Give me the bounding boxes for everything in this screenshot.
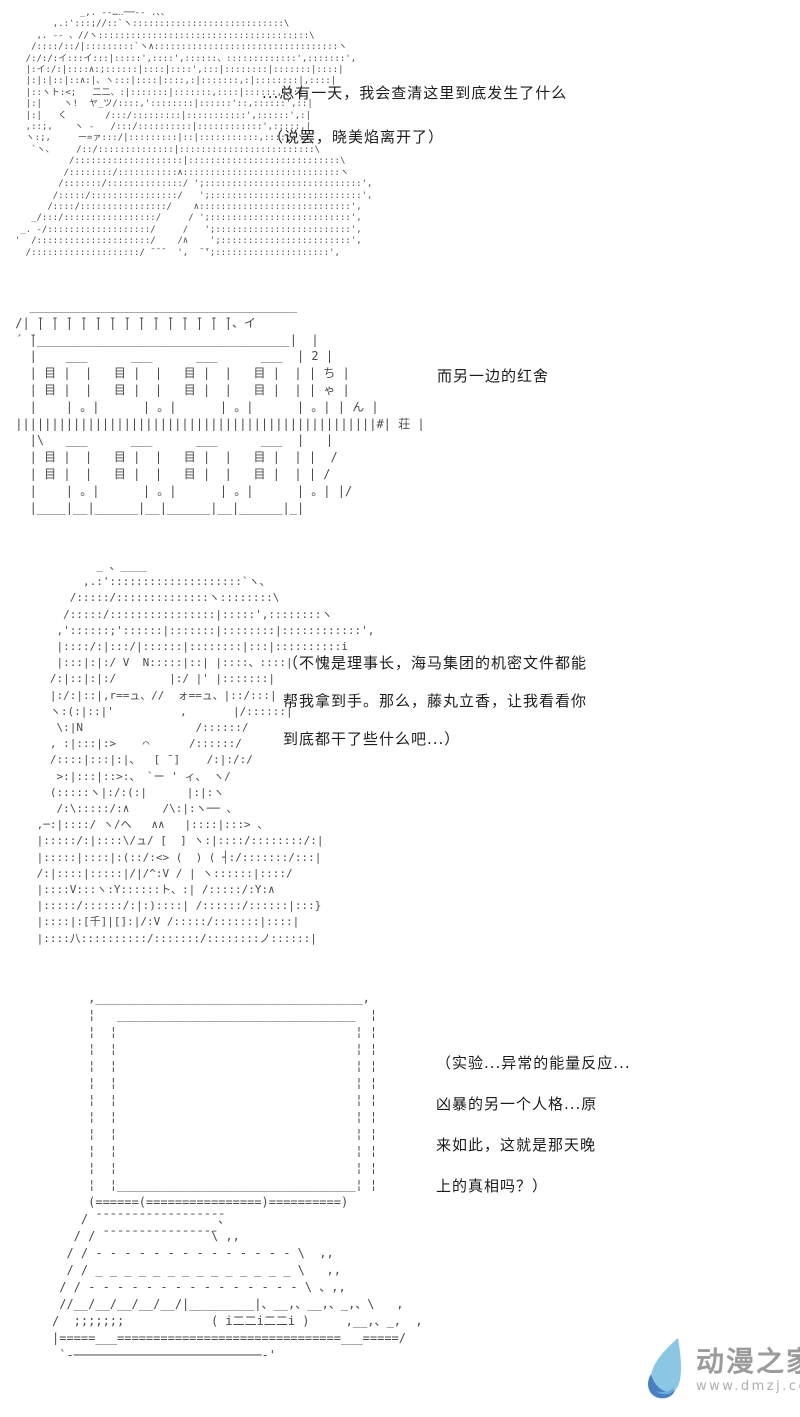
dialog-text-line: （不愧是理事长，海马集团的机密文件都能 [283, 652, 587, 690]
dialog-text-line: 上的真相吗？） [436, 1175, 631, 1216]
ascii-art-apartment-building: _____________________________________ /|… [8, 298, 425, 516]
dialog-text-block: （不愧是理事长，海马集团的机密文件都能 帮我拿到手。那么，藤丸立香，让我看看你 … [283, 652, 587, 766]
ascii-art-laptop: ,_____________________________________, … [52, 990, 423, 1364]
dialog-text-line: 到底都干了些什么吧...） [283, 728, 587, 766]
site-url: www.dmzj.com [696, 1379, 800, 1394]
dmzj-watermark: 动漫之家 www.dmzj.com [638, 1336, 800, 1404]
dialog-text-line: 凶暴的另一个人格...原 [436, 1093, 631, 1134]
dialog-text-line: 来如此，这就是那天晚 [436, 1134, 631, 1175]
dialog-text-line: ...总有一天，我会查清这里到底发生了什么 [262, 82, 567, 103]
dialog-text-line: （实验...异常的能量反应... [436, 1052, 631, 1093]
dmzj-watermark-text: 动漫之家 www.dmzj.com [696, 1347, 800, 1394]
dialog-text-block: （实验...异常的能量反应... 凶暴的另一个人格...原 来如此，这就是那天晚… [436, 1052, 631, 1216]
site-name: 动漫之家 [696, 1347, 800, 1377]
dmzj-flame-icon [638, 1336, 690, 1404]
dialog-text-line: 帮我拿到手。那么，藤丸立香，让我看看你 [283, 690, 587, 728]
comic-page: _,. -‐…‥──‐- .、、 ,.:':::;//::`ヽ:::::::::… [0, 0, 800, 1417]
dialog-text-line: 而另一边的红舍 [437, 365, 549, 386]
dialog-text-line: （说罢，晓美焰离开了） [268, 126, 444, 147]
